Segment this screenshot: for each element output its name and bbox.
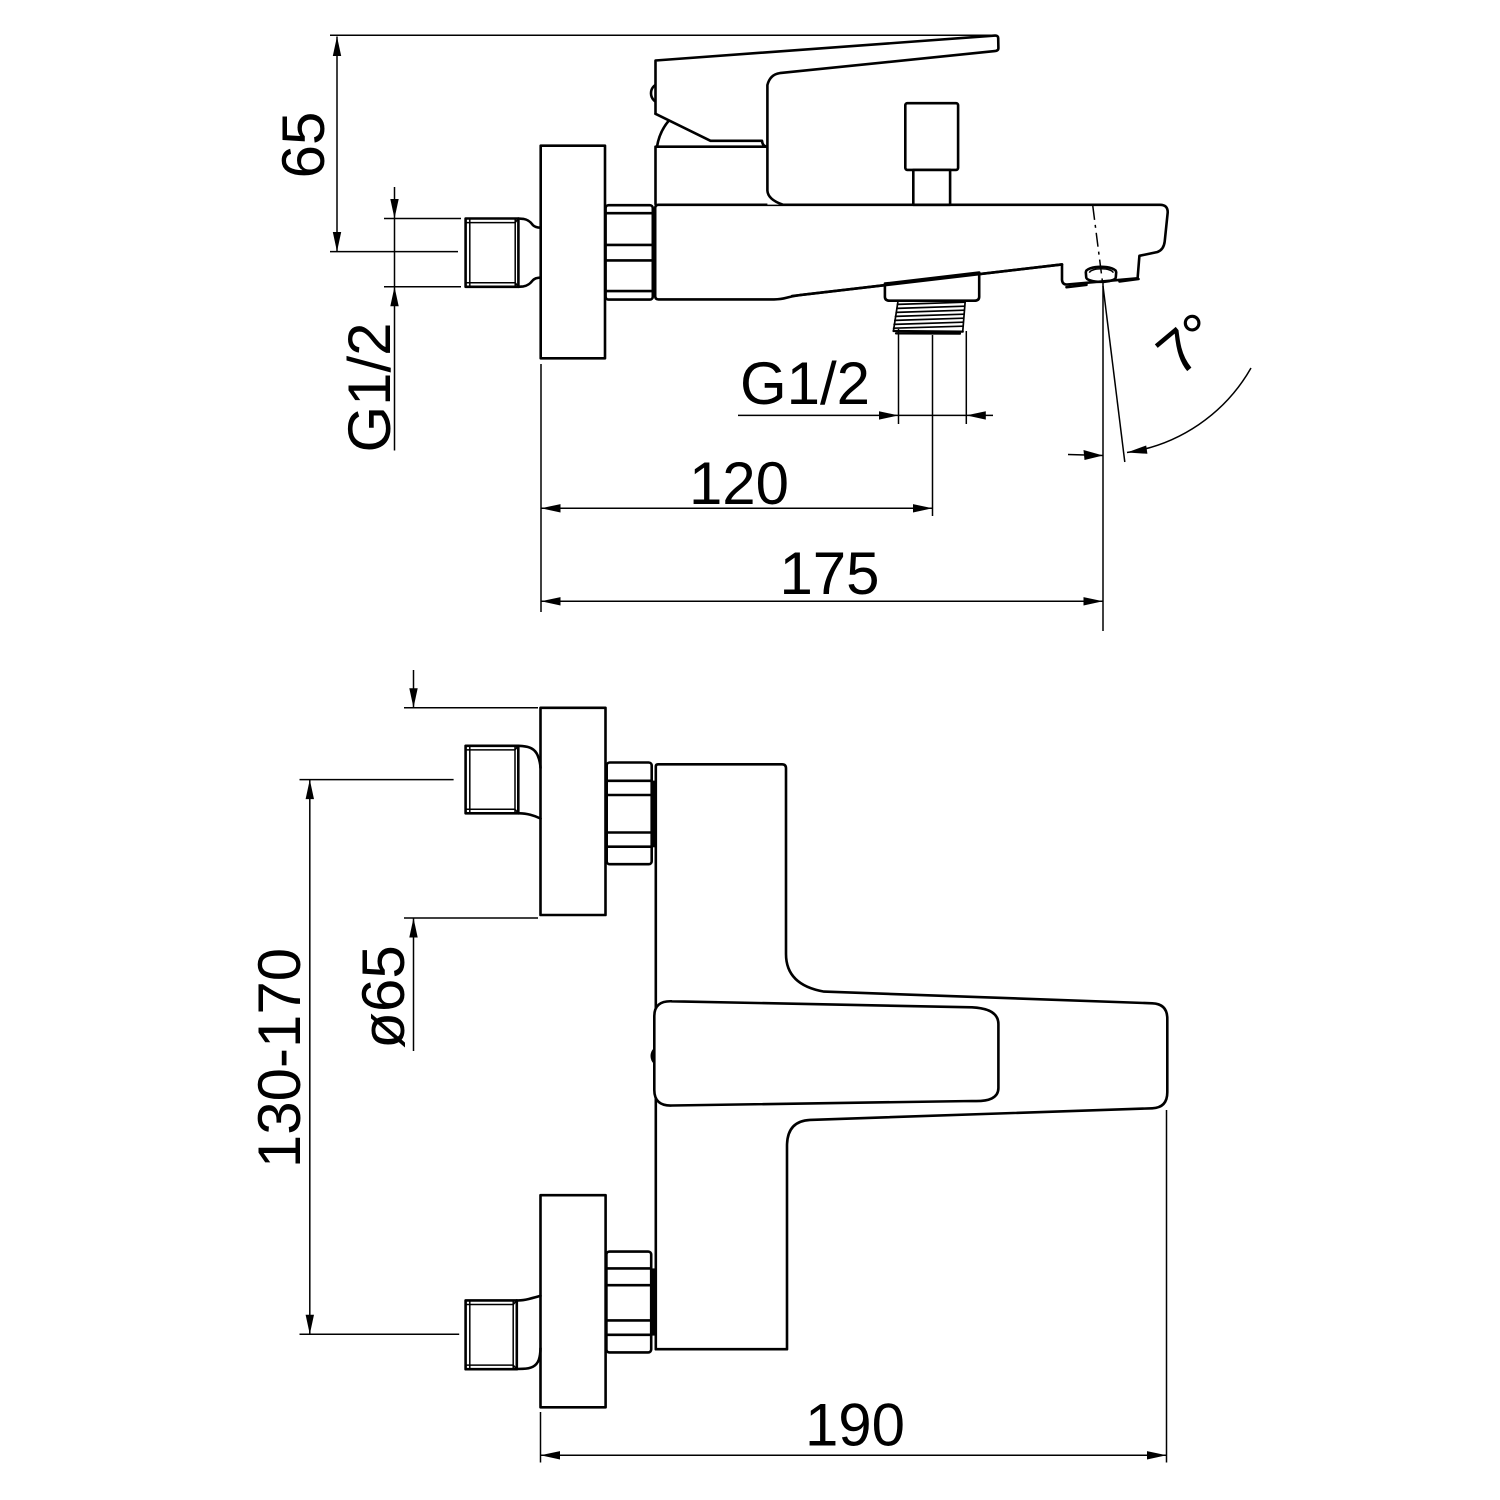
svg-text:G1/2: G1/2 (740, 350, 870, 417)
svg-text:190: 190 (805, 1392, 905, 1459)
svg-text:120: 120 (689, 450, 789, 517)
svg-text:65: 65 (270, 112, 337, 179)
svg-text:175: 175 (779, 540, 879, 607)
svg-text:G1/2: G1/2 (336, 322, 403, 452)
svg-text:ø65: ø65 (350, 945, 417, 1048)
svg-text:130-170: 130-170 (246, 948, 313, 1168)
